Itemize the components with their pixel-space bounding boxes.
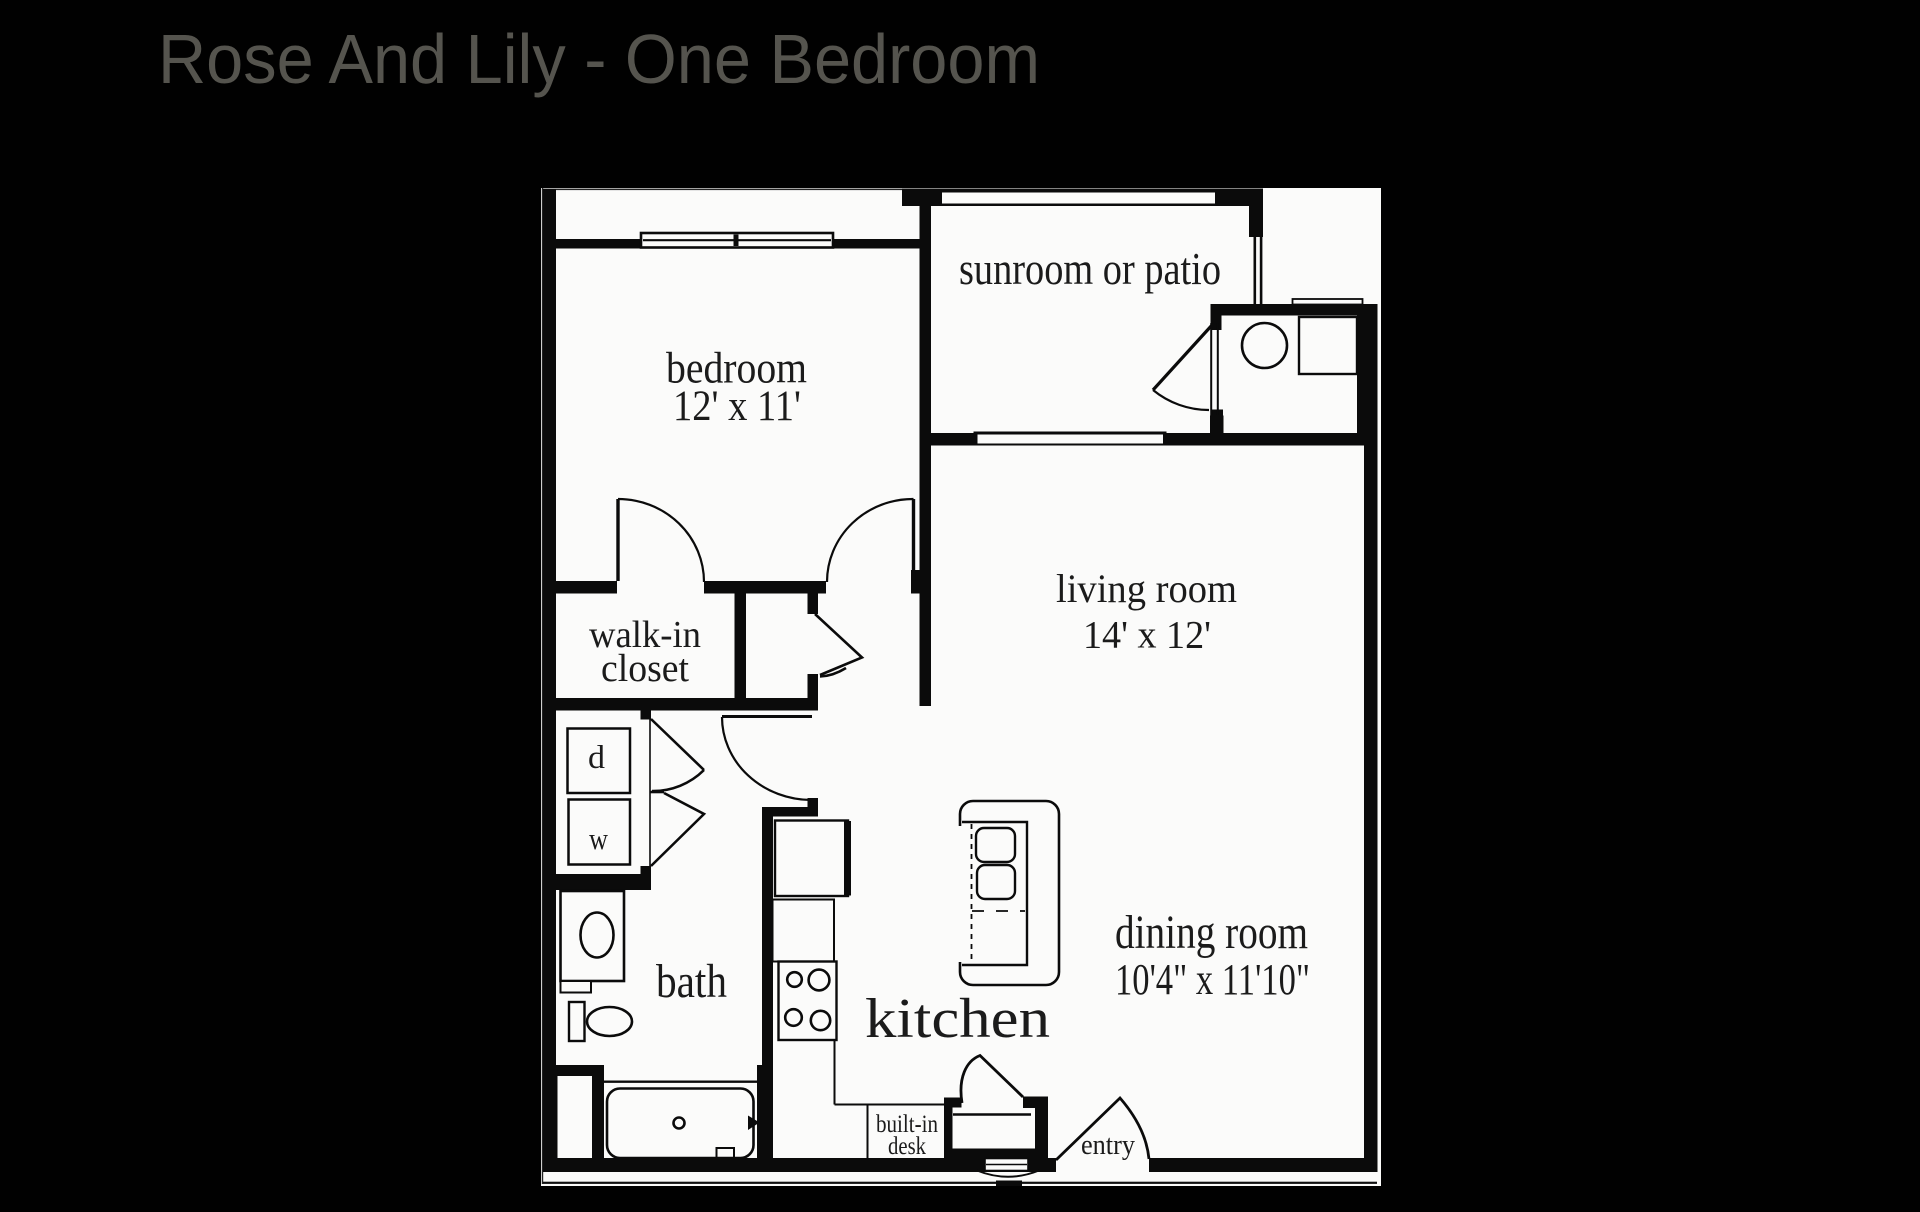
svg-text:14' x 12': 14' x 12' (1083, 614, 1211, 657)
svg-text:entry: entry (1081, 1129, 1135, 1161)
svg-text:desk: desk (888, 1133, 926, 1160)
svg-text:d: d (588, 740, 606, 776)
svg-text:bath: bath (656, 955, 727, 1008)
svg-text:sunroom or patio: sunroom or patio (959, 243, 1221, 294)
svg-text:closet: closet (601, 647, 689, 690)
svg-text:dining room: dining room (1115, 906, 1308, 959)
svg-text:kitchen: kitchen (865, 988, 1050, 1050)
svg-text:Rose And Lily - One Bedroom: Rose And Lily - One Bedroom (158, 20, 1040, 98)
svg-text:living room: living room (1056, 566, 1237, 611)
svg-text:10'4" x 11'10": 10'4" x 11'10" (1115, 955, 1310, 1004)
svg-text:w: w (589, 821, 609, 856)
svg-text:12' x 11': 12' x 11' (673, 383, 801, 430)
